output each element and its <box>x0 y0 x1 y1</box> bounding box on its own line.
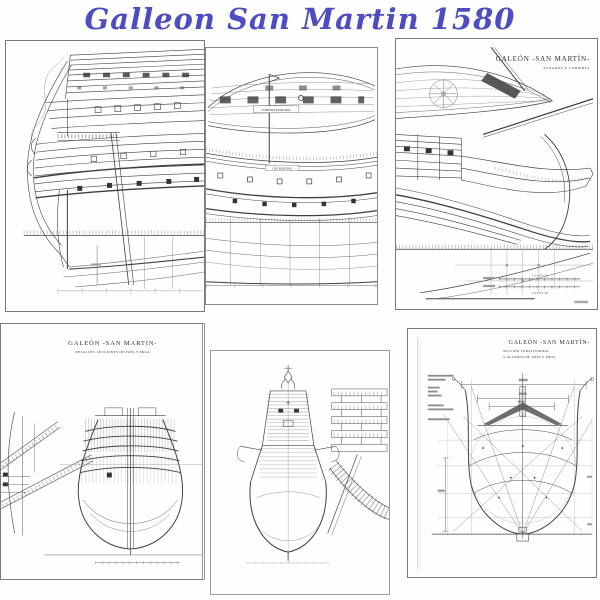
sheet-title: GALEÓN -SAN MARTÍN- <box>509 338 591 346</box>
stern-view-drawing <box>211 351 389 594</box>
hull-sections-drawing: GALEÓN -SAN MARTÍN- DETALLES. SECCIONES … <box>1 324 202 579</box>
sheet-subtitle: ALZADOS Y CUBIERTA <box>543 66 590 70</box>
body-plan-drawing: GALEÓN -SAN MARTÍN- SECCIÓN LONGITUDINAL… <box>408 329 596 577</box>
sheet-number-mark <box>574 301 588 303</box>
sheet-subtitle: DETALLES. SECCIONES DE POPA Y PROA <box>76 350 151 354</box>
stern-elevation-drawing <box>6 41 204 311</box>
scale-numbers-top: 1 2 3 4 5 10 <box>532 273 548 277</box>
main-deck-label: CUB. PRINCIPAL <box>272 167 293 170</box>
collage-canvas: Galleon San Martin 1580 <box>0 0 600 600</box>
deck-plan-label: CUBIERTA PRINCIPAL <box>261 108 291 112</box>
page-stern-view <box>210 350 390 595</box>
page-midship-elevation: CUBIERTA PRINCIPAL CUB. PRINCIPAL <box>205 47 378 305</box>
dimension-lines <box>443 381 586 531</box>
sheet-title: GALEÓN -SAN MARTÍN- <box>68 339 157 347</box>
legend-text-block <box>428 375 454 420</box>
scale-numbers-bottom: 1 2 3 4 5 10 <box>532 291 548 295</box>
midship-drawing: CUBIERTA PRINCIPAL CUB. PRINCIPAL <box>206 48 377 304</box>
page-body-plan: GALEÓN -SAN MARTÍN- SECCIÓN LONGITUDINAL… <box>407 328 597 578</box>
page-title: Galleon San Martin 1580 <box>0 0 600 38</box>
scale-bar: 1 2 3 4 5 10 1 2 3 4 5 10 <box>483 273 580 294</box>
framing-detail <box>328 389 389 535</box>
sheet-title: GALEÓN -SAN MARTÍN- <box>496 55 590 63</box>
page-hull-sections: GALEÓN -SAN MARTÍN- DETALLES. SECCIONES … <box>0 323 205 580</box>
page-stern-elevation <box>5 40 205 312</box>
bow-drawing: GALEÓN -SAN MARTÍN- ALZADOS Y CUBIERTA <box>396 39 597 309</box>
page-bow-elevation: GALEÓN -SAN MARTÍN- ALZADOS Y CUBIERTA <box>395 38 598 310</box>
dimension-label-mark <box>91 263 101 266</box>
sheet-subtitle-1: SECCIÓN LONGITUDINAL <box>503 348 550 353</box>
sheet-subtitle-2: Y ALZADOS DE POPA Y PROA <box>503 355 556 359</box>
